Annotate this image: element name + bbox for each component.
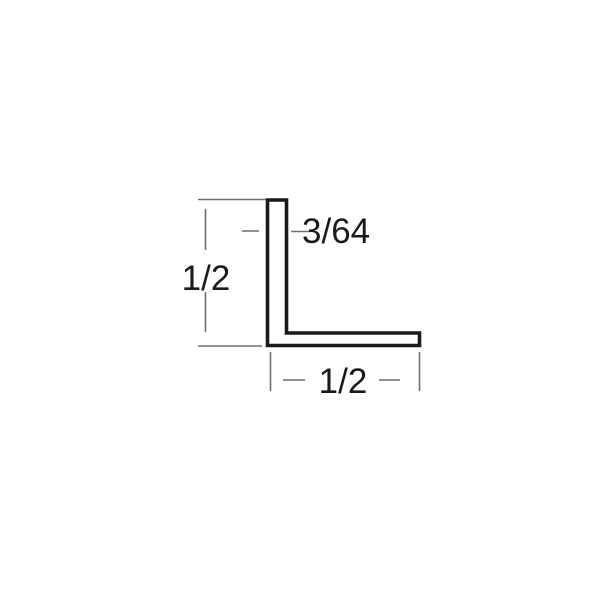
height-dimension-label: 1/2 (182, 259, 231, 298)
l-angle-dimension-diagram: 1/2 3/64 1/2 (0, 0, 600, 600)
width-dimension-label: 1/2 (319, 362, 368, 401)
thickness-dimension-label: 3/64 (302, 212, 370, 251)
diagram-canvas: 1/2 3/64 1/2 (0, 0, 600, 600)
